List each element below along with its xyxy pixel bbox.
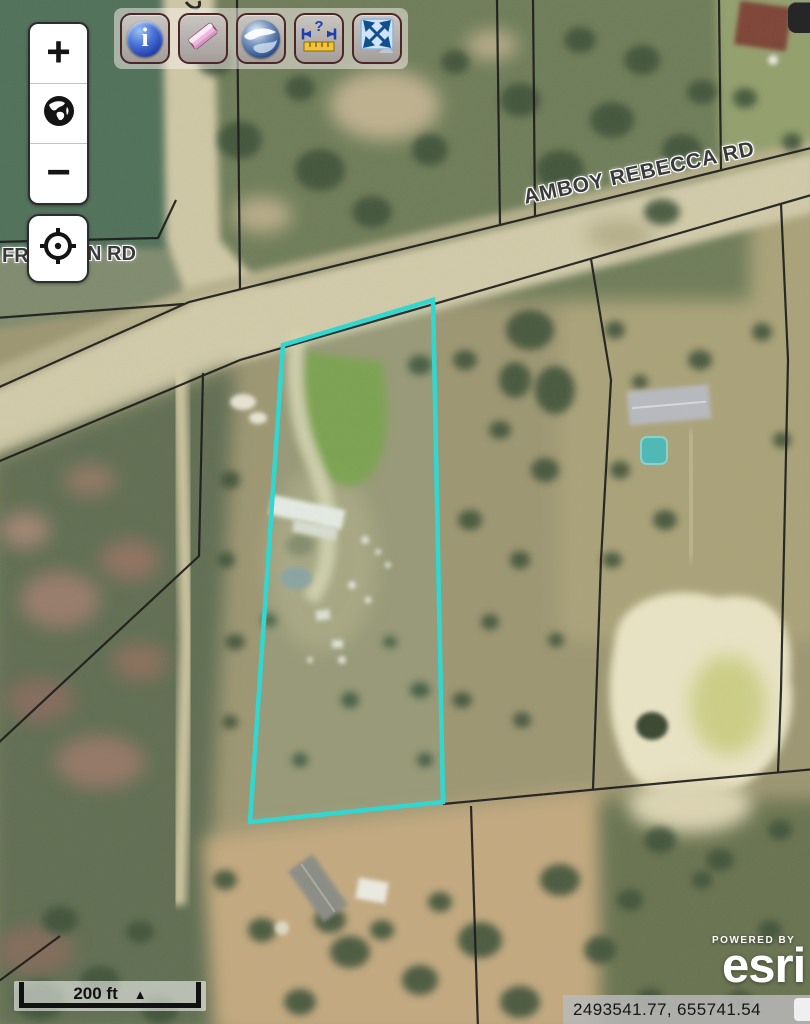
road-label-left-fragment-1: FR — [2, 245, 29, 268]
eraser-icon — [183, 16, 223, 61]
fullscreen-button[interactable] — [352, 13, 402, 64]
zoom-control: + − — [28, 22, 89, 205]
measure-icon: ? — [299, 16, 339, 61]
svg-text:?: ? — [314, 18, 323, 35]
zoom-out-button[interactable]: − — [30, 143, 87, 203]
home-extent-button[interactable] — [30, 83, 87, 143]
measure-button[interactable]: ? — [294, 13, 344, 64]
north-triangle-icon: ▲ — [134, 987, 147, 1002]
crosshair-icon — [38, 226, 78, 271]
identify-button[interactable]: i — [120, 13, 170, 64]
cutoff-corner-button[interactable] — [788, 2, 810, 33]
pan-locate-button[interactable] — [27, 214, 89, 283]
coordinate-status-bar: 2493541.77, 655741.54 — [563, 995, 810, 1024]
scale-bar-label: 200 ft▲ — [14, 984, 206, 1004]
google-earth-button[interactable] — [236, 13, 286, 64]
fullscreen-icon — [357, 16, 397, 61]
cursor-coordinates: 2493541.77, 655741.54 — [573, 1000, 761, 1020]
scale-bar: 200 ft▲ — [14, 981, 206, 1011]
erase-button[interactable] — [178, 13, 228, 64]
plus-icon: + — [46, 31, 71, 73]
cutoff-units-button[interactable] — [794, 998, 810, 1021]
google-earth-icon — [242, 20, 280, 58]
info-icon: i — [127, 21, 163, 57]
road-label-left-fragment-2: N RD — [87, 243, 136, 266]
map-viewport[interactable]: AMBOY REBECCA RD FR N RD + − — [0, 0, 810, 1024]
minus-icon: − — [46, 151, 71, 193]
map-toolbar: i — [114, 8, 408, 69]
esri-logo: esri — [722, 938, 805, 994]
globe-icon — [41, 93, 77, 134]
zoom-in-button[interactable]: + — [30, 24, 87, 83]
